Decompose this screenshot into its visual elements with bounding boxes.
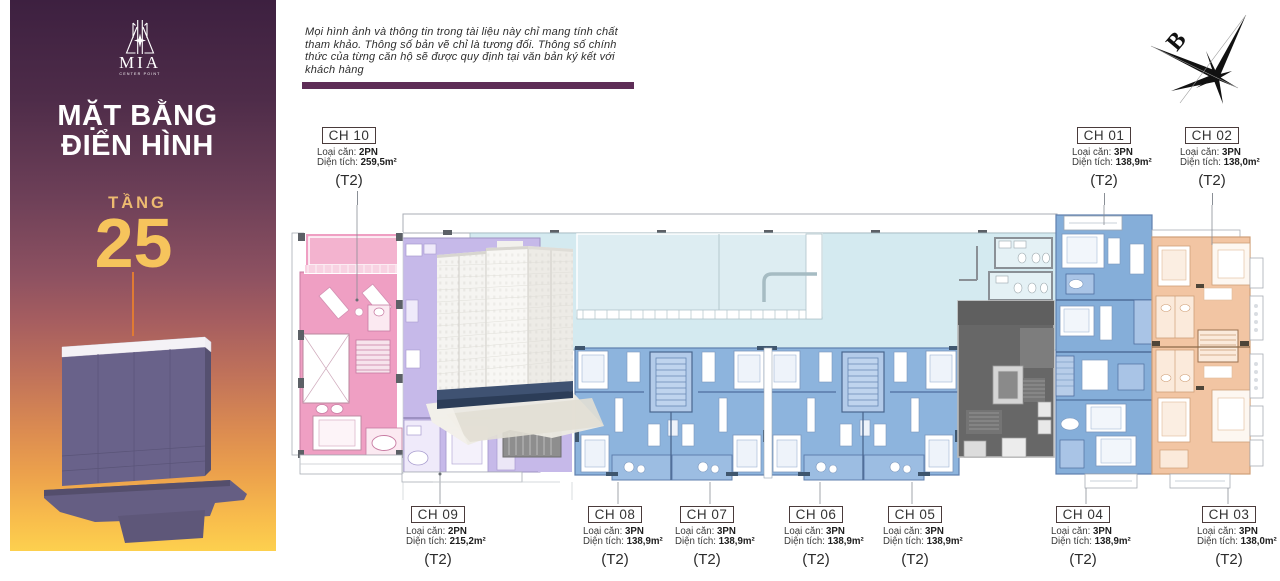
svg-text:MIA: MIA <box>119 53 161 72</box>
svg-text:B: B <box>1162 27 1192 56</box>
svg-text:CENTER POINT: CENTER POINT <box>119 72 160 76</box>
